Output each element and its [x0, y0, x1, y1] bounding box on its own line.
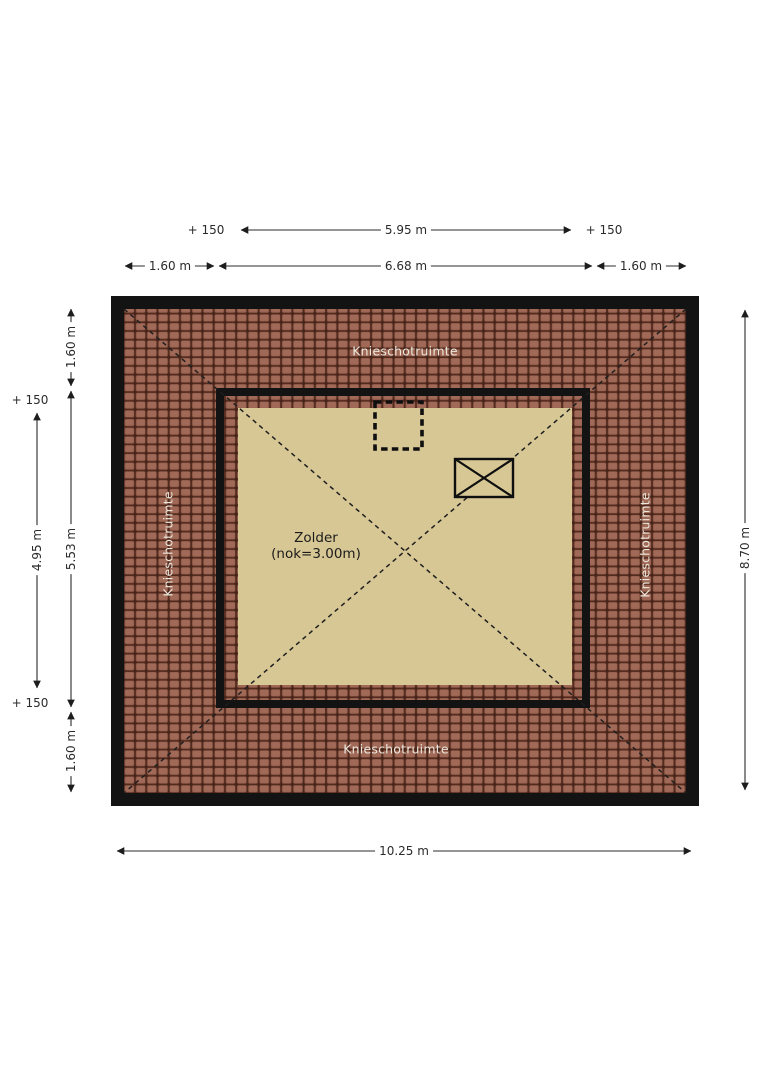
dimension-label-160-left-bottom: 1.60 m [64, 726, 78, 776]
level-label-left-lower: + 150 [8, 696, 53, 710]
area-label-knieschotruimte-left: Knieschotruimte [161, 491, 176, 596]
floorplan-canvas: + 150 5.95 m + 150 1.60 m 6.68 m 1.60 m … [0, 0, 764, 1080]
area-label-knieschotruimte-top: Knieschotruimte [352, 344, 457, 359]
dimension-label-160-left-top: 1.60 m [64, 322, 78, 372]
level-label-top-right: + 150 [582, 223, 627, 237]
room-ridge-height: (nok=3.00m) [271, 546, 361, 562]
dimension-label-160-top-right: 1.60 m [616, 259, 666, 273]
area-label-knieschotruimte-right: Knieschotruimte [638, 492, 653, 597]
room-label-zolder: Zolder (nok=3.00m) [271, 530, 361, 562]
dimension-label-668: 6.68 m [381, 259, 431, 273]
dimension-label-1025: 10.25 m [375, 844, 433, 858]
dimension-label-870: 8.70 m [738, 523, 752, 573]
room-name: Zolder [271, 530, 361, 546]
level-label-left-upper: + 150 [8, 393, 53, 407]
dimension-label-553: 5.53 m [64, 524, 78, 574]
level-label-top-left: + 150 [184, 223, 229, 237]
dimension-label-495: 4.95 m [30, 525, 44, 575]
roof-window-symbol [455, 459, 513, 497]
dimension-label-160-top-left: 1.60 m [145, 259, 195, 273]
dimension-label-595: 5.95 m [381, 223, 431, 237]
area-label-knieschotruimte-bottom: Knieschotruimte [343, 742, 448, 757]
